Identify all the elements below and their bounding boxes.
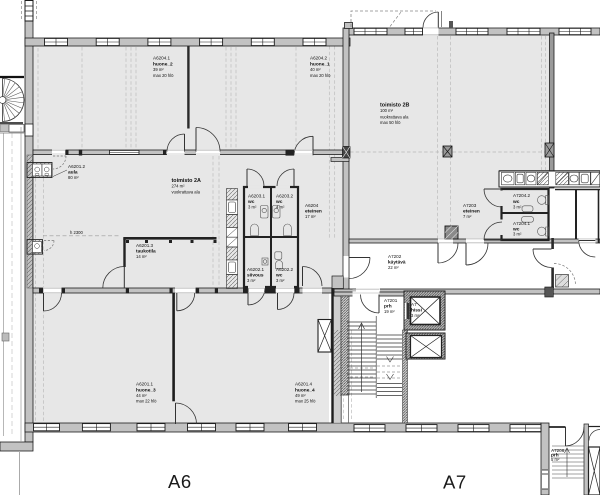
svg-text:vuokrattava ala: vuokrattava ala xyxy=(172,190,201,195)
svg-text:A6202.1: A6202.1 xyxy=(247,267,265,272)
svg-text:A6204: A6204 xyxy=(305,203,319,208)
svg-text:14 m²: 14 m² xyxy=(136,254,147,259)
svg-text:3 m²: 3 m² xyxy=(513,205,522,210)
svg-text:17 m²: 17 m² xyxy=(305,214,316,219)
svg-text:3 m²: 3 m² xyxy=(248,205,257,210)
svg-text:7 m²: 7 m² xyxy=(463,214,472,219)
svg-text:A6203.1: A6203.1 xyxy=(248,194,266,199)
svg-text:A7206: A7206 xyxy=(551,448,565,453)
svg-text:h 2300: h 2300 xyxy=(70,230,83,235)
svg-text:A6201.2: A6201.2 xyxy=(68,164,86,169)
svg-text:3 m²: 3 m² xyxy=(513,232,522,237)
svg-text:max 50 hlö: max 50 hlö xyxy=(380,120,401,125)
svg-text:A6201.1: A6201.1 xyxy=(136,382,154,387)
svg-text:A6201.4: A6201.4 xyxy=(295,382,313,387)
svg-text:A7201: A7201 xyxy=(384,298,398,303)
svg-text:A6: A6 xyxy=(168,471,192,492)
svg-text:A6204.1: A6204.1 xyxy=(153,56,171,61)
svg-text:A7: A7 xyxy=(443,472,467,493)
svg-text:max 20 hlö: max 20 hlö xyxy=(310,73,331,78)
svg-text:vuokrattava ala: vuokrattava ala xyxy=(380,114,409,119)
svg-text:A7203: A7203 xyxy=(463,203,477,208)
svg-text:max 20 hlö: max 20 hlö xyxy=(153,73,174,78)
svg-text:max 22 hlö: max 22 hlö xyxy=(136,399,157,404)
svg-text:19 m²: 19 m² xyxy=(384,309,395,314)
svg-text:A6204.2: A6204.2 xyxy=(310,56,328,61)
svg-text:A7204.1: A7204.1 xyxy=(513,221,531,226)
svg-text:A6202.2: A6202.2 xyxy=(276,267,294,272)
svg-text:A6203.2: A6203.2 xyxy=(276,194,294,199)
svg-text:49 m²: 49 m² xyxy=(295,393,306,398)
svg-text:A7: A7 xyxy=(411,302,417,307)
svg-text:max 25 hlö: max 25 hlö xyxy=(295,399,316,404)
svg-text:5 m²: 5 m² xyxy=(551,457,560,462)
svg-text:3 m²: 3 m² xyxy=(411,313,420,318)
svg-text:22 m²: 22 m² xyxy=(388,265,399,270)
svg-text:44 m²: 44 m² xyxy=(136,393,147,398)
svg-text:A7204.2: A7204.2 xyxy=(513,193,531,198)
svg-text:A6201.3: A6201.3 xyxy=(136,243,154,248)
svg-text:40 m²: 40 m² xyxy=(310,67,321,72)
svg-text:3 m²: 3 m² xyxy=(247,278,256,283)
svg-text:39 m²: 39 m² xyxy=(153,67,164,72)
svg-text:4 m²: 4 m² xyxy=(276,205,285,210)
svg-text:3 m²: 3 m² xyxy=(276,278,285,283)
svg-text:A7202: A7202 xyxy=(388,254,402,259)
svg-text:80 m²: 80 m² xyxy=(68,175,79,180)
svg-text:274 m²: 274 m² xyxy=(172,184,186,189)
svg-text:100 m²: 100 m² xyxy=(380,108,394,113)
